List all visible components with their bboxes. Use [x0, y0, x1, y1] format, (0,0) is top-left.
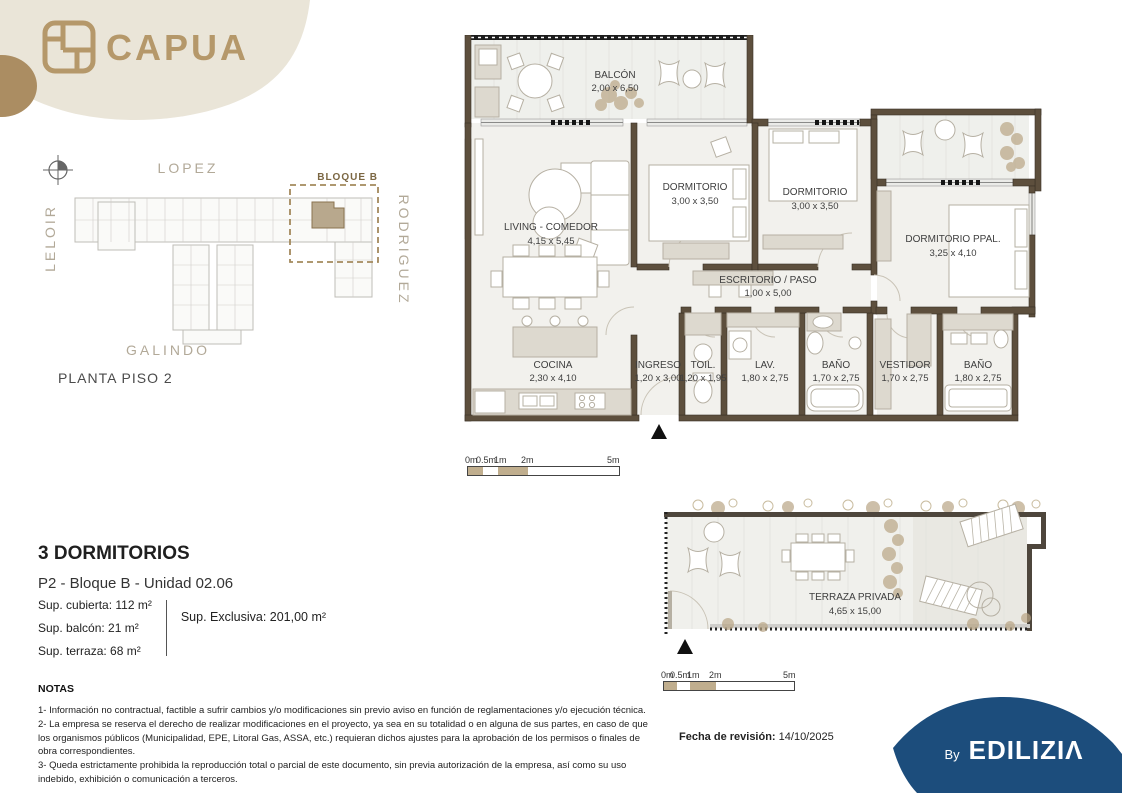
area-terraza: Sup. terraza: 68 m² [38, 644, 152, 658]
floorplan-logo-icon [42, 20, 96, 74]
terrace-entrance-arrow [677, 639, 693, 654]
area-divider [166, 600, 167, 656]
street-label-lopez: LOPEZ [68, 160, 308, 176]
scale-tick: 0.5m [476, 455, 496, 465]
svg-text:1,00 x 5,00: 1,00 x 5,00 [744, 288, 791, 299]
street-label-rodriguez: RODRIGUEZ [396, 190, 412, 310]
room-label-ppal: DORMITORIO PPAL. [905, 234, 1000, 245]
room-label-bano2: BAÑO [964, 358, 993, 371]
svg-text:3,00 x 3,50: 3,00 x 3,50 [791, 201, 838, 212]
scale-tick: 1m [687, 670, 700, 680]
scale-tick: 2m [709, 670, 722, 680]
scale-bar-terrace: 0m 0.5m 1m 2m 5m [663, 670, 803, 694]
plan-sheet: CAPUA LOPEZ LELOIR RODRIGUEZ GALINDO BLO… [0, 0, 1122, 793]
svg-text:4,65 x 15,00: 4,65 x 15,00 [829, 606, 881, 617]
balcony-railing [471, 35, 747, 40]
svg-text:1,80 x 2,75: 1,80 x 2,75 [741, 373, 788, 384]
room-label-bano1: BAÑO [822, 358, 851, 371]
svg-text:1,20 x 3,00: 1,20 x 3,00 [634, 373, 681, 384]
edilizia-blob: ByEDILIZIΛ [880, 675, 1122, 793]
svg-text:4,15 x 5,45: 4,15 x 5,45 [527, 236, 574, 247]
revision-label: Fecha de revisión: [679, 731, 776, 743]
room-label-cocina: COCINA [534, 360, 573, 371]
svg-text:3,00 x 3,50: 3,00 x 3,50 [671, 196, 718, 207]
building-footprint [65, 180, 391, 350]
svg-text:2,00 x 6,50: 2,00 x 6,50 [591, 83, 638, 94]
edilizia-brand: EDILIZIΛ [969, 735, 1084, 765]
revision-value: 14/10/2025 [779, 731, 834, 743]
by-label: By [944, 747, 959, 762]
unit-title: 3 DORMITORIOS [38, 543, 190, 565]
street-label-leloir: LELOIR [42, 188, 58, 288]
terrace-plan: TERRAZA PRIVADA 4,65 x 15,00 [658, 496, 1054, 662]
svg-text:2,30 x 4,10: 2,30 x 4,10 [529, 373, 576, 384]
room-label-escritorio: ESCRITORIO / PASO [719, 275, 817, 286]
unit-subtitle: P2 - Bloque B - Unidad 02.06 [38, 575, 233, 592]
scale-tick: 5m [783, 670, 796, 680]
blob-shape [880, 675, 1122, 793]
area-cubierta: Sup. cubierta: 112 m² [38, 598, 152, 612]
unit-areas: Sup. cubierta: 112 m² Sup. balcón: 21 m²… [38, 598, 326, 667]
room-label-toil: TOIL. [691, 360, 716, 371]
room-label-ingreso: INGRESO [635, 360, 681, 371]
scale-tick: 5m [607, 455, 620, 465]
scale-tick: 2m [521, 455, 534, 465]
terrace-label: TERRAZA PRIVADA [809, 592, 901, 603]
note-3: 3- Queda estrictamente prohibida la repr… [38, 759, 652, 787]
by-edilizia: ByEDILIZIΛ [925, 735, 1103, 766]
note-1: 1- Información no contractual, factible … [38, 704, 652, 718]
svg-text:1,70 x 2,75: 1,70 x 2,75 [812, 373, 859, 384]
room-label-lav: LAV. [755, 360, 775, 371]
svg-text:3,25 x 4,10: 3,25 x 4,10 [929, 248, 976, 259]
site-plan: LOPEZ LELOIR RODRIGUEZ GALINDO BLOQUE B … [28, 140, 428, 398]
area-exclusiva: Sup. Exclusiva: 201,00 m² [181, 610, 326, 624]
svg-text:1,80 x 2,75: 1,80 x 2,75 [954, 373, 1001, 384]
room-label-vestidor: VESTIDOR [879, 360, 930, 371]
notes-title: NOTAS [38, 683, 652, 695]
scale-tick: 1m [494, 455, 507, 465]
svg-text:1,20 x 1,95: 1,20 x 1,95 [679, 373, 726, 384]
note-2: 2- La empresa se reserva el derecho de r… [38, 718, 652, 759]
main-floor-plan: BALCÓN 2,00 x 6,50 LIVING - COMEDOR 4,15… [463, 35, 1053, 445]
brand-name: CAPUA [106, 27, 249, 69]
plan-caption: PLANTA PISO 2 [58, 370, 173, 386]
area-balcon: Sup. balcón: 21 m² [38, 621, 152, 635]
room-label-living: LIVING - COMEDOR [504, 222, 598, 233]
scale-bar-main: 0m 0.5m 1m 2m 5m [467, 455, 627, 479]
svg-text:1,70 x 2,75: 1,70 x 2,75 [881, 373, 928, 384]
entrance-arrow [651, 424, 667, 439]
revision-date: Fecha de revisión: 14/10/2025 [679, 731, 834, 743]
room-label-balcon: BALCÓN [594, 68, 635, 81]
room-label-dorm1: DORMITORIO [663, 182, 728, 193]
room-label-dorm2: DORMITORIO [783, 187, 848, 198]
notes-section: NOTAS 1- Información no contractual, fac… [38, 683, 652, 787]
